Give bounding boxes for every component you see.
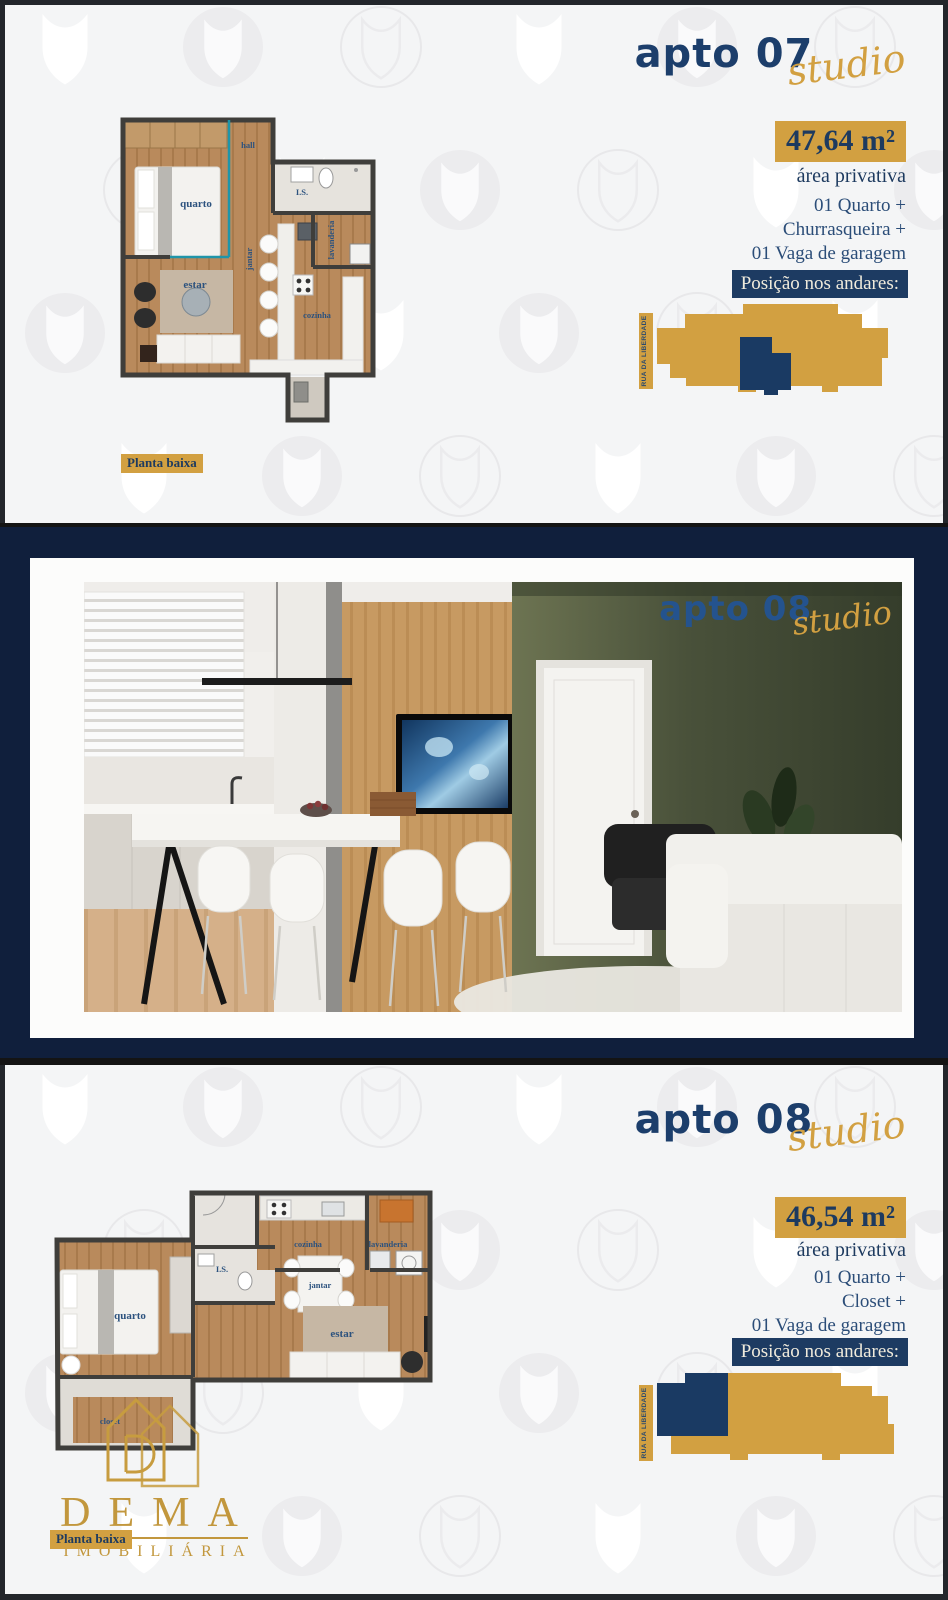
apto08-features: 01 Quarto + Closet + 01 Vaga de garagem — [752, 1266, 906, 1338]
dema-shield-watermark-icon — [572, 1204, 664, 1296]
apto07-area-badge: 47,64 m² — [775, 121, 906, 162]
apto08-area-badge: 46,54 m² — [775, 1197, 906, 1238]
apto07-plan-caption: Planta baixa — [121, 454, 203, 473]
room-label-jantar: jantar — [308, 1280, 332, 1290]
wardrobe — [170, 1257, 193, 1333]
dema-shield-watermark-icon — [493, 1065, 585, 1153]
room-label-lavanderia: lavanderia — [326, 220, 336, 259]
dema-shield-watermark-icon — [19, 5, 111, 93]
highlighted-unit-08 — [657, 1373, 728, 1436]
apto08-plan-caption: Planta baixa — [50, 1530, 132, 1549]
dema-shield-watermark-icon — [177, 5, 269, 93]
interior-photo — [84, 582, 902, 1012]
feature-line: 01 Vaga de garagem — [752, 1314, 906, 1338]
apto08-title: apto 08 studio — [635, 1100, 906, 1140]
apto07-floor-position-diagram: RUA DA LIBERDADE — [626, 300, 910, 406]
feature-line: 01 Quarto + — [752, 1266, 906, 1290]
dema-shield-watermark-icon — [888, 430, 943, 522]
dema-shield-watermark-icon — [414, 144, 506, 236]
dema-shield-watermark-icon — [98, 430, 190, 522]
pendant-light — [202, 678, 352, 685]
feature-line: 01 Quarto + — [752, 194, 906, 218]
churrasqueira — [294, 382, 308, 402]
feature-line: Churrasqueira + — [752, 218, 906, 242]
dema-shield-watermark-icon — [493, 287, 585, 379]
room-label-quarto: quarto — [114, 1310, 146, 1322]
room-label-jantar: jantar — [244, 247, 254, 271]
dema-shield-watermark-icon — [335, 1065, 427, 1153]
room-label-hall: hall — [241, 140, 255, 150]
photo-title-number: apto 08 — [659, 592, 812, 626]
apto07-area-caption: área privativa — [797, 165, 906, 187]
dema-shield-watermark-icon — [730, 430, 822, 522]
room-label-cozinha: cozinha — [303, 310, 332, 320]
sofa — [157, 335, 240, 363]
room-label-lavanderia: lavanderia — [369, 1239, 408, 1249]
apto07-title: apto 07 studio — [635, 34, 906, 74]
brochure-page: apto 07 studio 47,64 m² área privativa 0… — [0, 0, 948, 1600]
dema-house-logo-icon — [100, 1388, 210, 1488]
apto08-street-label: RUA DA LIBERDADE — [641, 1387, 648, 1458]
brand-divider — [130, 1537, 248, 1539]
room-label-estar: estar — [330, 1328, 353, 1340]
feature-line: Closet + — [752, 1290, 906, 1314]
dema-shield-watermark-icon — [493, 5, 585, 93]
window-blinds — [84, 592, 244, 757]
room-label-cozinha: cozinha — [294, 1239, 323, 1249]
laundry-cabinet — [380, 1200, 413, 1222]
dema-shield-watermark-icon — [19, 1065, 111, 1153]
feature-line: 01 Vaga de garagem — [752, 242, 906, 266]
brand-name: DEMA — [27, 1492, 289, 1534]
apto07-position-label: Posição nos andares: — [732, 270, 908, 298]
floorplan-apto07: quarto hall I.S. lavanderia jantar estar… — [112, 104, 392, 426]
room-label-is: I.S. — [216, 1264, 228, 1274]
dema-shield-watermark-icon — [493, 1347, 585, 1439]
apto08-floor-position-diagram: RUA DA LIBERDADE — [626, 1368, 910, 1468]
tv-screen — [402, 720, 508, 808]
kitchen-island — [278, 224, 294, 364]
apto08-position-label: Posição nos andares: — [732, 1338, 908, 1366]
dema-shield-watermark-icon — [19, 287, 111, 379]
dema-shield-watermark-icon — [414, 1490, 506, 1582]
apto07-features: 01 Quarto + Churrasqueira + 01 Vaga de g… — [752, 194, 906, 266]
dema-shield-watermark-icon — [572, 144, 664, 236]
door-knob — [631, 810, 639, 818]
room-label-estar: estar — [183, 279, 206, 291]
tall-cabinet — [274, 582, 326, 1012]
dema-shield-watermark-icon — [256, 430, 348, 522]
countertop — [84, 804, 274, 814]
kitchen-backsplash — [84, 757, 274, 807]
dema-shield-watermark-icon — [888, 1490, 943, 1582]
stove — [267, 1200, 291, 1218]
room-label-is: I.S. — [296, 187, 308, 197]
dema-shield-watermark-icon — [414, 430, 506, 522]
dema-shield-watermark-icon — [572, 430, 664, 522]
sofa — [290, 1352, 400, 1378]
dema-shield-watermark-icon — [335, 5, 427, 93]
dema-shield-watermark-icon — [730, 1490, 822, 1582]
mirror-strip — [326, 582, 342, 1012]
apto07-street-label: RUA DA LIBERDADE — [641, 315, 648, 386]
dema-shield-watermark-icon — [572, 1490, 664, 1582]
photo-title: apto 08 studio — [659, 592, 892, 626]
room-label-quarto: quarto — [180, 198, 212, 210]
apto08-area-caption: área privativa — [797, 1239, 906, 1261]
stove — [293, 275, 313, 295]
dema-shield-watermark-icon — [177, 1065, 269, 1153]
